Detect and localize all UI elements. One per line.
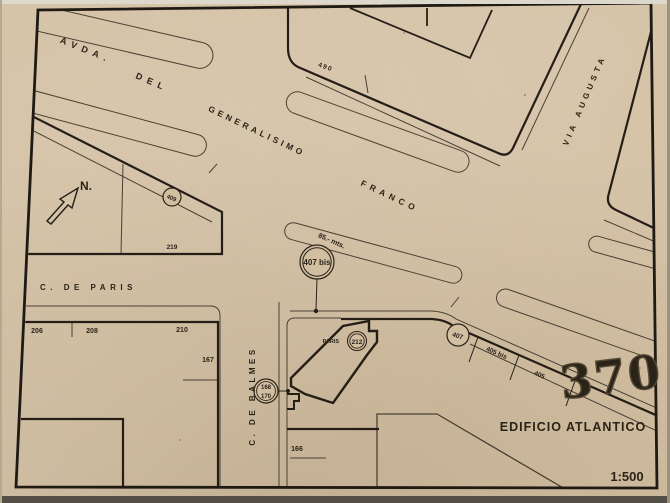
photo-edge-top — [0, 0, 670, 4]
via-augusta-west-curb — [522, 8, 589, 150]
avenue-north-curb-east — [604, 220, 658, 243]
parcel-number-166: 166 — [291, 446, 303, 453]
leader-407bis — [316, 279, 317, 309]
photo-edge-bottom — [0, 496, 670, 503]
north-arrow-icon — [47, 188, 78, 224]
street-label-franco: FRANCO — [359, 178, 420, 214]
median-island — [5, 84, 209, 158]
parcel-number-490: 490 — [317, 61, 334, 73]
parcel-number-219: 219 — [167, 244, 178, 251]
building-tag-paris: PARIS — [323, 339, 340, 345]
street-label-via-augusta: VIA AUGUSTA — [561, 53, 608, 147]
block-490-inner-building — [350, 8, 492, 58]
footprint-annex-steps — [287, 394, 299, 409]
parcel-number-210: 210 — [176, 327, 188, 334]
parcel-number-208: 208 — [86, 328, 98, 335]
triangle-block-divider — [121, 164, 123, 254]
paris-south-curb — [20, 306, 220, 488]
parcel-490-tick — [365, 75, 368, 93]
scanned-site-plan: N. AVDA. DEL GENERALISIMO FRANCO VIA AUG… — [0, 0, 670, 503]
street-label-del: DEL — [134, 71, 170, 94]
block-206-outline — [20, 322, 218, 488]
street-label-calle-balmes: C. DE BALMES — [248, 346, 257, 445]
north-arrow: N. — [47, 179, 92, 224]
dimension-tick-west — [209, 164, 217, 173]
circled-ref-labels: 409 407 bis 407 212 168 170 PARIS — [165, 194, 464, 400]
curb-line — [26, 127, 212, 222]
median-island — [587, 234, 670, 271]
block-490-outline — [288, 4, 581, 155]
north-label: N. — [80, 179, 92, 193]
stamp-number: 370 — [557, 344, 665, 410]
scale-label: 1:500 — [610, 469, 643, 484]
photo-edge-left — [0, 0, 2, 503]
street-label-avda: AVDA. — [59, 35, 114, 65]
parcel-number-206: 206 — [31, 328, 43, 335]
ref-label-407bis: 407 bis — [303, 258, 331, 267]
ref-label-170: 170 — [261, 394, 272, 400]
ref-label-212: 212 — [352, 339, 363, 346]
block-206-inner-parcel — [20, 419, 123, 488]
site-plan-svg: N. AVDA. DEL GENERALISIMO FRANCO VIA AUG… — [0, 0, 670, 503]
leader-dot-168-170 — [286, 389, 290, 393]
dimension-tick-east — [451, 297, 459, 307]
street-label-calle-paris: C. DE PARIS — [40, 283, 137, 292]
building-name-label: EDIFICIO ATLANTICO — [500, 420, 646, 434]
parcel-number-167: 167 — [202, 357, 214, 364]
leader-dot-407bis — [314, 309, 318, 313]
street-label-generalisimo: GENERALISIMO — [207, 104, 307, 159]
parcel-number-405: 405 — [533, 370, 546, 381]
ref-label-168: 168 — [261, 385, 272, 391]
footprint-outline — [291, 321, 377, 403]
